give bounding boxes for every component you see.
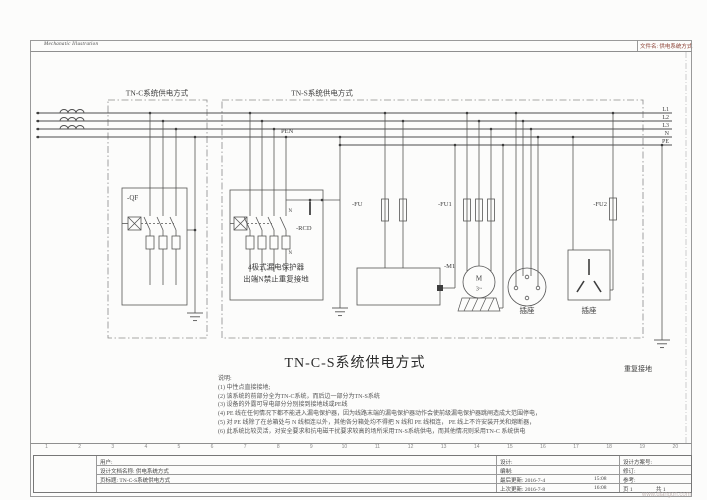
socket-flat-symbol [568, 113, 617, 300]
titleblock-rowline [96, 474, 691, 475]
ruler-col: 12 [394, 444, 427, 453]
socket-pin [536, 286, 540, 290]
bus-label-pe: PE [662, 139, 669, 145]
tb-prev-update: 上次更新: 2016-7-8 [500, 485, 545, 493]
m1-label: -M1 [444, 263, 455, 270]
fu1-label: -FU1 [438, 201, 452, 208]
notes-heading: 说明: [218, 375, 541, 384]
qf-breaker-icon [122, 217, 180, 285]
rcd-label: -RCD [296, 225, 312, 232]
note-item: (1) 中性点直接接地; [218, 384, 541, 393]
title-block: 用户: 设计文档名称: 供电系统方式 页标题: TN-C-S系统供电方式 设计:… [33, 455, 692, 493]
note-item: (6) 此系统比较灵活，对安全要求和抗电磁干扰要求较高的场所采用TN-S系统供电… [218, 428, 541, 437]
ruler-col: 10 [328, 444, 361, 453]
tb-designer: 设计: [500, 458, 513, 466]
ruler-col: 17 [560, 444, 593, 453]
appliance-box [357, 268, 440, 305]
tb-prev-update-time: 16:08 [594, 485, 607, 491]
ruler-col: 3 [96, 444, 129, 453]
socket-prongs [577, 259, 601, 292]
ruler-col: 4 [129, 444, 162, 453]
transformer-coil-icon [60, 118, 84, 121]
ruler-col: 5 [162, 444, 195, 453]
note-item: (3) 设备的外露可导电部分分别接到接地线或PE线 [218, 401, 541, 410]
rcd-n-in-label: N [289, 209, 293, 214]
zone-boxes [108, 100, 643, 338]
socket-flat-label: 插座 [582, 305, 597, 315]
bus-label-l1: L1 [662, 107, 669, 113]
notes-block: 说明: (1) 中性点直接接地; (2) 该系统的前部分全为TN-C系统，而后边… [218, 375, 541, 437]
qf-panel [122, 113, 203, 321]
ruler-col: 11 [361, 444, 394, 453]
bus-lines [36, 110, 672, 145]
bus-label-pen: PEN [281, 128, 294, 135]
rcd-note-line1: 4极式漏电保护器 [248, 262, 305, 272]
ruler-col: 8 [262, 444, 295, 453]
ground-icon [654, 340, 670, 348]
note-item: (4) PE 线在任何情况下都不能进入漏电保护器，因为线路末端的漏电保护器动作会… [218, 410, 541, 419]
repeat-ground-branch [654, 145, 670, 348]
ruler-col: 9 [295, 444, 328, 453]
tns-zone-box [222, 100, 643, 338]
rcd-panel [230, 113, 348, 316]
motor-letter: M [476, 275, 483, 283]
qf-panel-box [122, 188, 187, 305]
ruler-col: 2 [63, 444, 96, 453]
transformer-coil-icon [60, 126, 84, 130]
socket-round-shell [508, 268, 546, 306]
tb-reference: 参考: [623, 476, 636, 484]
ruler-col: 6 [195, 444, 228, 453]
note-item: (2) 该系统的前部分全为TN-C系统，而后边一部分为TN-S系统 [218, 393, 541, 402]
ground-icon [332, 308, 348, 316]
ground-icon [187, 313, 203, 321]
socket-pin [514, 286, 518, 290]
ruler-col: 16 [526, 444, 559, 453]
tb-last-update: 最后更新: 2016-7-4 [500, 476, 545, 484]
tb-scheme-no: 设计方案号: [623, 458, 652, 466]
ruler-col: 14 [460, 444, 493, 453]
socket-round-symbol [508, 113, 546, 306]
motor-phases: 3~ [476, 287, 483, 293]
ruler-col: 13 [427, 444, 460, 453]
fu-branch [357, 113, 455, 305]
bus-label-l3: L3 [662, 123, 669, 129]
qf-label: -QF [127, 194, 138, 202]
junction-dots [37, 112, 664, 232]
drawing-page: Mechanatic Illustration 文件名: 供电系统方式 [0, 0, 707, 500]
column-ruler: 1 2 3 4 5 6 7 8 9 10 11 12 13 14 15 16 1… [30, 444, 692, 453]
tb-doc-name: 设计文档名称: 供电系统方式 [100, 467, 169, 475]
tb-author: 编制: [500, 467, 513, 475]
tb-revision: 修订: [623, 467, 636, 475]
titleblock-rowline [96, 483, 691, 484]
rcd-n-out-label: N [289, 251, 293, 256]
ruler-col: 15 [493, 444, 526, 453]
tb-page-title: 页标题: TN-C-S系统供电方式 [100, 476, 170, 484]
tb-last-update-time: 15:08 [594, 476, 607, 482]
ruler-col: 18 [593, 444, 626, 453]
zone-label-tnc: TN-C系统供电方式 [126, 88, 189, 98]
rcd-note-line2: 出端N禁止重复接地 [243, 274, 309, 284]
titleblock-rowline [96, 465, 691, 466]
socket-round-label: 插座 [520, 305, 535, 315]
page-title: TN-C-S系统供电方式 [240, 352, 470, 372]
bus-label-n: N [665, 131, 670, 137]
socket-pin [525, 296, 529, 300]
ruler-col: 19 [626, 444, 659, 453]
tb-customer: 用户: [100, 458, 113, 466]
fu2-label: -FU2 [593, 201, 607, 208]
transformer-coil-icon [60, 110, 84, 113]
tb-page: 页 1 [623, 485, 633, 493]
watermark-text: www.diangon.com [642, 492, 691, 498]
motor-base-icon [458, 298, 500, 311]
repeat-ground-label: 重复接地 [624, 364, 652, 373]
ruler-col: 20 [659, 444, 692, 453]
bus-label-l2: L2 [662, 115, 669, 121]
pe-terminal [437, 285, 443, 291]
zone-label-tns: TN-S系统供电方式 [291, 88, 353, 98]
fu-label: -FU [352, 201, 363, 208]
socket-pin [525, 275, 529, 279]
note-item: (5) 对 PE 线除了在总箱处与 N 线相连以外，其他各分箱处均不得把 N 线… [218, 419, 541, 428]
ruler-col: 7 [229, 444, 262, 453]
ruler-col: 1 [30, 444, 63, 453]
